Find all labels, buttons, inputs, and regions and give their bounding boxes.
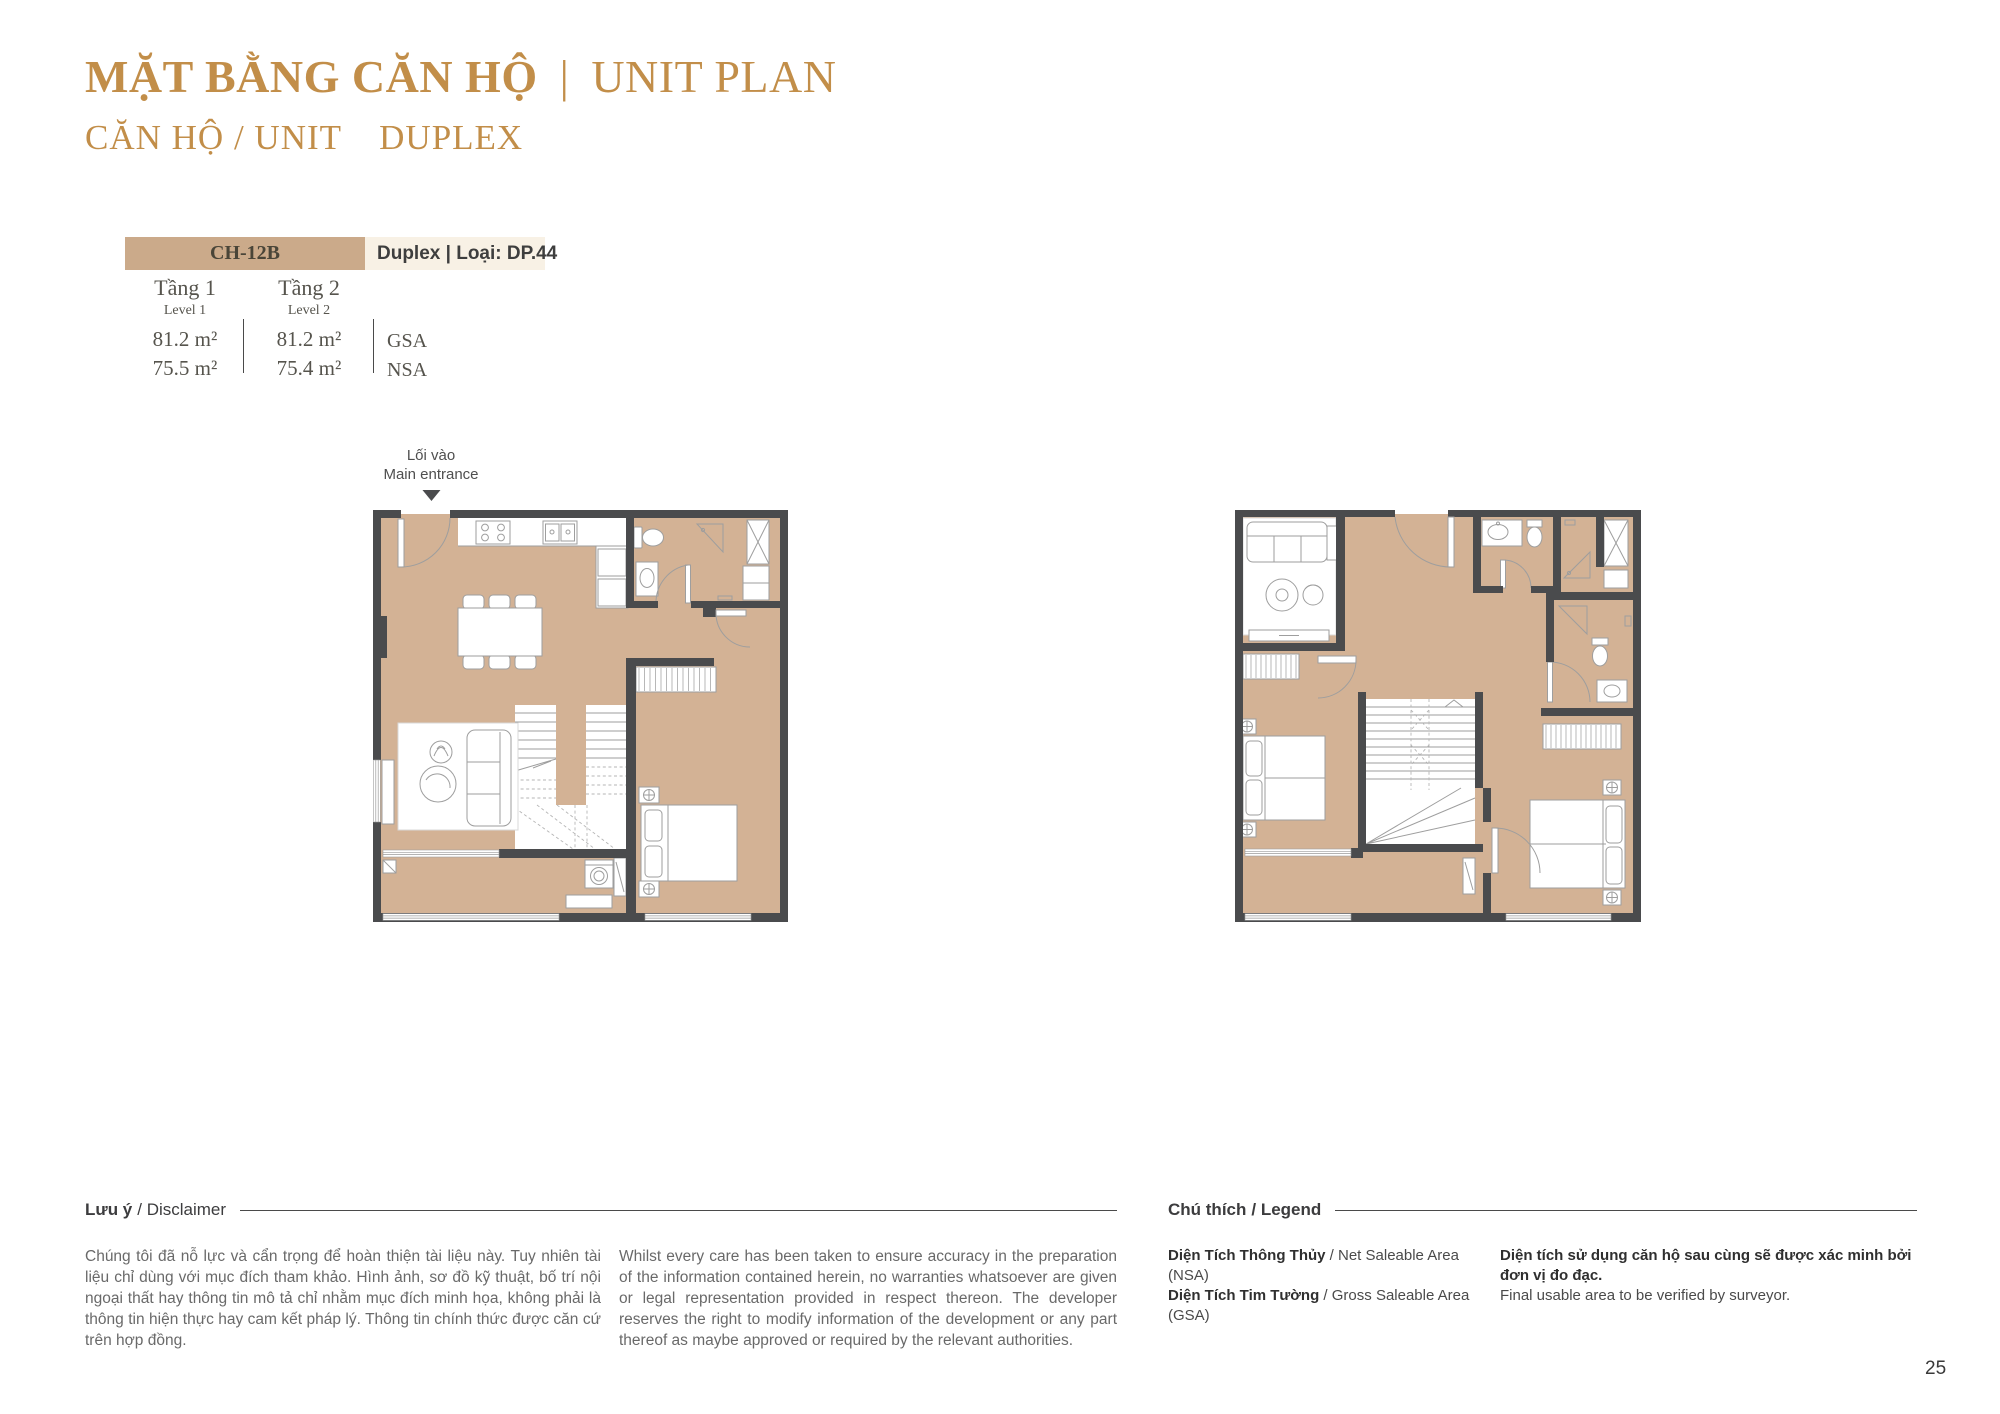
legend-definitions: Diện Tích Thông Thủy / Net Saleable Area… (1168, 1246, 1484, 1326)
unit-type-name: DUPLEX (379, 118, 523, 157)
level1-name-vi: Tầng 1 (125, 275, 245, 301)
nsa-label: NSA (387, 356, 427, 385)
main-entrance-label: Lối vào Main entrance (383, 446, 478, 501)
entrance-arrow-icon (422, 490, 440, 501)
level2-gsa-value: 81.2 m² (249, 325, 369, 354)
legend-heading: Chú thích / Legend (1168, 1200, 1917, 1220)
legend-item-nsa: Diện Tích Thông Thủy / Net Saleable Area… (1168, 1246, 1484, 1286)
page-title-separator: | (550, 51, 580, 102)
unit-type-cell: Duplex | Loại: DP.44 (365, 237, 545, 270)
level2-name-vi: Tầng 2 (249, 275, 369, 301)
disclaimer-heading-vi: Lưu ý (85, 1200, 132, 1220)
entrance-label-en: Main entrance (383, 465, 478, 484)
page-number: 25 (1925, 1358, 1946, 1380)
disclaimer-heading-en: / Disclaimer (137, 1200, 226, 1220)
level1-name-en: Level 1 (125, 303, 245, 319)
level2-name-en: Level 2 (249, 303, 369, 319)
disclaimer-heading: Lưu ý / Disclaimer (85, 1200, 1117, 1220)
legend-note-en: Final usable area to be verified by surv… (1500, 1286, 1917, 1306)
level2-areas: 81.2 m² 75.4 m² (249, 325, 369, 383)
floor-plan-level-1-svg (373, 510, 788, 922)
unit-info-table: CH-12B Duplex | Loại: DP.44 Tầng 1 Level… (125, 237, 555, 397)
level1-nsa-value: 75.5 m² (125, 354, 245, 383)
disclaimer-rule (240, 1210, 1117, 1211)
table-divider-2 (373, 319, 374, 373)
brochure-page: MẶT BẰNG CĂN HỘ | UNIT PLAN CĂN HỘ / UNI… (0, 0, 2000, 1414)
floor-plan-level-2-svg (1235, 510, 1650, 922)
legend-heading-en: / Legend (1251, 1200, 1321, 1220)
legend-gsa-vi: Diện Tích Tim Tường (1168, 1287, 1319, 1304)
level1-header: Tầng 1 Level 1 (125, 275, 245, 319)
living-room (382, 723, 518, 830)
floor-plan-level-2 (1235, 510, 1650, 927)
hall-closet (1463, 858, 1475, 894)
disclaimer-section: Lưu ý / Disclaimer Chúng tôi đã nỗ lực v… (85, 1200, 1117, 1351)
legend-rule (1335, 1210, 1917, 1211)
legend-heading-vi: Chú thích (1168, 1200, 1246, 1220)
gsa-label: GSA (387, 327, 427, 356)
page-title: MẶT BẰNG CĂN HỘ | UNIT PLAN (85, 50, 836, 103)
dining-set (458, 595, 542, 669)
entrance-label-vi: Lối vào (383, 446, 478, 465)
page-title-en: UNIT PLAN (591, 51, 836, 102)
page-subtitle: CĂN HỘ / UNIT DUPLEX (85, 118, 523, 158)
family-room (1243, 518, 1338, 641)
level1-gsa-value: 81.2 m² (125, 325, 245, 354)
floor-plan-level-1 (373, 510, 788, 927)
level2-header: Tầng 2 Level 2 (249, 275, 369, 319)
legend-item-gsa: Diện Tích Tim Tường / Gross Saleable Are… (1168, 1286, 1484, 1326)
disclaimer-text-en: Whilst every care has been taken to ensu… (619, 1246, 1117, 1351)
level2-nsa-value: 75.4 m² (249, 354, 369, 383)
staircase-level2 (1366, 699, 1475, 844)
disclaimer-text-vi: Chúng tôi đã nỗ lực và cẩn trọng để hoàn… (85, 1246, 601, 1351)
legend-note-vi: Diện tích sử dụng căn hộ sau cùng sẽ đượ… (1500, 1246, 1917, 1286)
area-unit-labels: GSA NSA (387, 327, 427, 385)
page-title-vi: MẶT BẰNG CĂN HỘ (85, 51, 538, 102)
level1-areas: 81.2 m² 75.5 m² (125, 325, 245, 383)
page-subtitle-label: CĂN HỘ / UNIT (85, 118, 341, 157)
legend-note: Diện tích sử dụng căn hộ sau cùng sẽ đượ… (1500, 1246, 1917, 1326)
legend-nsa-vi: Diện Tích Thông Thủy (1168, 1247, 1326, 1264)
legend-section: Chú thích / Legend Diện Tích Thông Thủy … (1168, 1200, 1917, 1326)
unit-code-cell: CH-12B (125, 237, 365, 270)
